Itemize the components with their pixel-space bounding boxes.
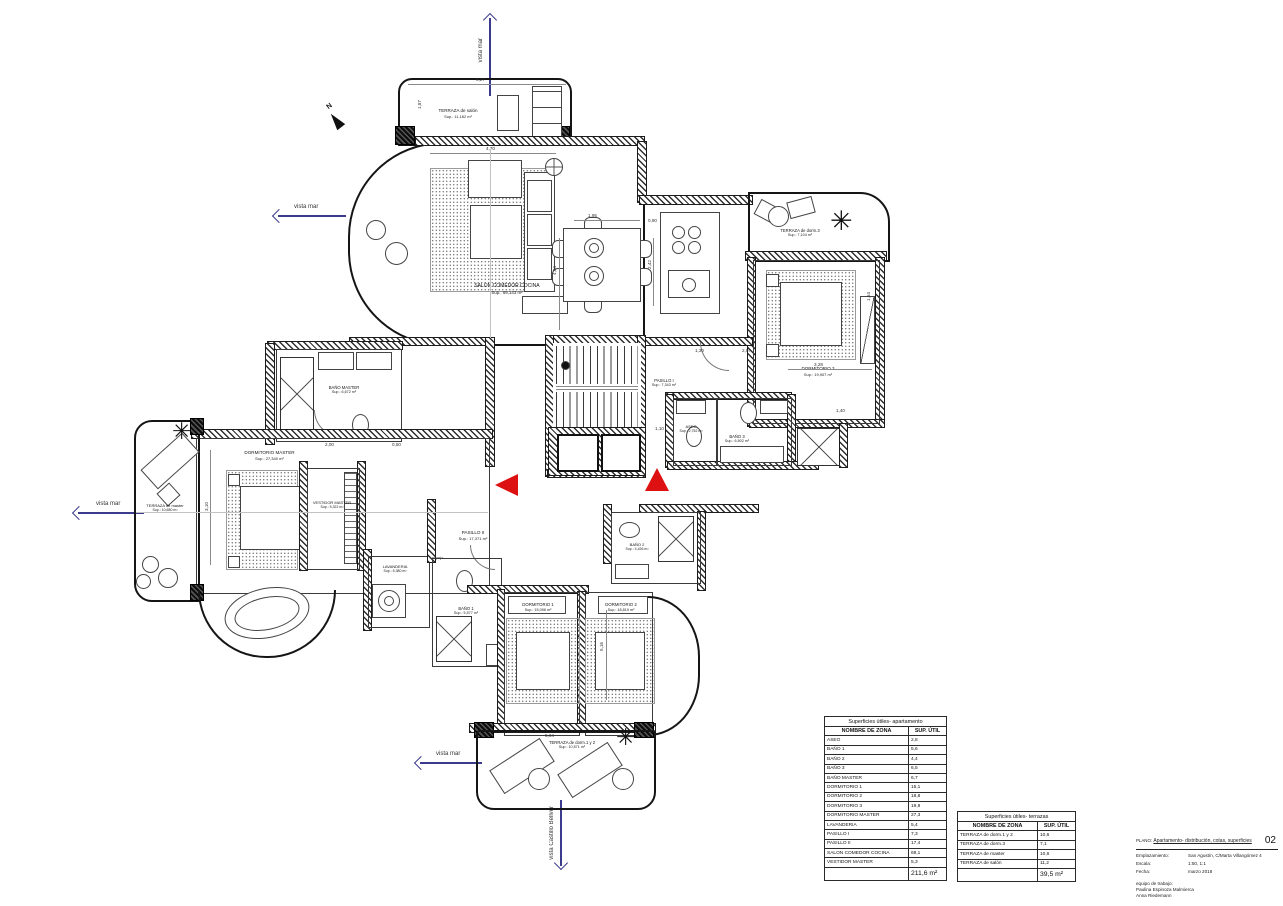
terrace-sofa	[532, 86, 562, 140]
table-row: SALON COMEDOR COCINA69,1	[825, 849, 947, 858]
north-arrow-icon: N	[331, 112, 341, 129]
dimension-label: 4,70	[486, 146, 495, 151]
wall-segment	[546, 336, 644, 343]
stair-start-dot	[561, 361, 570, 370]
plate-center	[589, 243, 599, 253]
room-label-bano2: BAÑO 2Sup.: 4,426 m²	[612, 542, 662, 552]
table-row: DORMITORIO 218,8	[825, 792, 947, 801]
table-row: BAÑO 36,5	[825, 764, 947, 773]
room-label-salon: SALON COMEDOR COCINASup.: 69,143 m²	[452, 283, 562, 295]
dimension-label: 0,50	[392, 442, 401, 447]
shower	[658, 516, 694, 562]
col-header-name: NOMBRE DE ZONA	[958, 822, 1038, 831]
dorm2-bed	[595, 632, 645, 690]
table-row: BAÑO 24,4	[825, 755, 947, 764]
title-block: PLANO: Apartamento- distribución, cotas,…	[1136, 838, 1278, 898]
toilet	[740, 402, 757, 424]
plant-icon: ✳	[172, 420, 191, 443]
sideboard	[522, 296, 568, 314]
closet	[344, 472, 357, 564]
wall-segment	[604, 505, 611, 563]
table-row: ASEO2,8	[825, 736, 947, 745]
sink	[760, 400, 788, 414]
wall-segment	[416, 137, 644, 145]
room-label-dormitorio2: DORMITORIO 2Sup.: 18,819 m²	[586, 602, 656, 612]
sink	[615, 564, 649, 579]
arrow-line	[420, 762, 482, 764]
team-member: Paulina Espinoza Malmierca	[1136, 887, 1278, 892]
wall-segment	[192, 430, 492, 438]
wardrobe	[860, 296, 875, 364]
dorm1-bed	[516, 632, 570, 690]
team-label: equipo de trabajo:	[1136, 881, 1278, 886]
sink	[318, 352, 354, 370]
dimension-line	[788, 369, 872, 370]
table-row: DORMITORIO 115,1	[825, 783, 947, 792]
table-title-row: Superficies útiles- terrazas	[958, 812, 1076, 822]
wall-segment	[644, 338, 752, 345]
terrace-table	[158, 568, 178, 588]
master-bed	[240, 486, 304, 550]
coffee-table	[470, 205, 522, 259]
room-label-vestidor: VESTIDOR MASTERSup.: 5,322 m²	[304, 500, 360, 510]
table-header-row: NOMBRE DE ZONA SUP. ÚTIL	[825, 727, 947, 736]
north-letter: N	[325, 102, 333, 111]
dimension-label: 2,00	[325, 442, 334, 447]
arrow-head-icon	[414, 756, 428, 770]
dimension-label: 3,10	[204, 502, 209, 511]
dimension-label: 2,07	[742, 348, 751, 353]
sofa-cushion	[527, 214, 552, 246]
arrow-head-icon	[272, 209, 286, 223]
wall-segment	[300, 462, 307, 570]
sheet-number: 02	[1265, 835, 1276, 846]
burner	[688, 241, 701, 254]
burner	[688, 226, 701, 239]
axis-line	[136, 512, 488, 513]
table-row: BAÑO MASTER6,7	[825, 773, 947, 782]
col-header-sup: SUP. ÚTIL	[1038, 822, 1076, 831]
sofa-cushion	[527, 248, 552, 280]
dimension-line	[408, 84, 566, 85]
wall-segment	[746, 252, 886, 260]
table-title-row: Superficies útiles- apartamento	[825, 717, 947, 727]
room-label-pasillo1: PASILLO ISup.: 7,343 m²	[634, 378, 694, 388]
wall-pier	[190, 418, 204, 435]
sink	[356, 352, 392, 370]
table-row: BAÑO 15,6	[825, 745, 947, 754]
dimension-line	[653, 238, 654, 306]
col-header-name: NOMBRE DE ZONA	[825, 727, 909, 736]
table-total-row: 39,5 m²	[958, 868, 1076, 881]
chair	[640, 240, 652, 258]
door-swing	[700, 342, 729, 371]
entry-marker-up-icon	[645, 468, 669, 491]
elevator-cab	[601, 434, 641, 472]
field-row: Escala: 1:50, 1:1	[1136, 861, 1278, 866]
dimension-line	[210, 450, 211, 565]
wall-segment	[840, 424, 847, 467]
view-label: vista Castillo Bellver	[549, 806, 555, 860]
room-label-lavanderia: LAVANDERIASup.: 5,380 m²	[364, 564, 426, 574]
dimension-label: 1,10	[655, 426, 664, 431]
view-label: vista mar	[294, 204, 318, 210]
wall-segment	[268, 342, 402, 349]
chair	[584, 301, 602, 313]
arrow-line	[278, 215, 346, 217]
field-label: Emplazamiento:	[1136, 853, 1188, 858]
field-row: Fecha: marzo 2018	[1136, 869, 1278, 874]
nightstand	[766, 344, 779, 357]
dimension-label: 1,64	[866, 292, 871, 301]
stair-treads	[556, 392, 638, 427]
table-superficies-apartamento: Superficies útiles- apartamento NOMBRE D…	[824, 716, 947, 881]
dimension-label: 1,30	[695, 348, 704, 353]
dimension-label: 3,28	[814, 362, 823, 367]
north-needle	[327, 111, 345, 131]
sink-basin	[682, 278, 696, 292]
table-row: TERRAZA de dorm.1 y 210,6	[958, 831, 1076, 840]
nightstand	[228, 474, 240, 486]
field-value: 1:50, 1:1	[1188, 861, 1206, 866]
table-title: Superficies útiles- terrazas	[958, 812, 1076, 822]
field-label: Escala:	[1136, 861, 1188, 866]
wall-segment	[640, 505, 758, 512]
dorm2-bow-window	[648, 596, 700, 736]
armchair	[385, 242, 408, 265]
room-label-aseo: ASEOSup.: 2,752 m²	[668, 424, 714, 434]
toilet	[619, 522, 640, 538]
table-row: VESTIDOR MASTER5,3	[825, 858, 947, 867]
shower	[797, 428, 841, 466]
plano-value: Apartamento- distribución, cotas, superf…	[1153, 838, 1251, 844]
room-label-terraza-dorm3: TERRAZA de dorm.3Sup.: 7,104 m²	[758, 228, 842, 238]
wall-segment	[638, 142, 646, 202]
dimension-line	[574, 220, 640, 221]
arrow-head-icon	[72, 506, 86, 520]
burner	[672, 241, 685, 254]
floorplan-sheet: vista mar vista mar vista mar vista mar …	[0, 0, 1283, 906]
terrace-table	[528, 768, 550, 790]
room-label-pasillo2: PASILLO IISup.: 17,371 m²	[436, 530, 510, 541]
chair	[584, 217, 602, 229]
room-label-terraza-salon: TERRAZA de salónSup.: 11,182 m²	[418, 108, 498, 119]
plate-center	[589, 271, 599, 281]
shower	[436, 616, 472, 662]
plano-row: PLANO: Apartamento- distribución, cotas,…	[1136, 838, 1278, 850]
table-header-row: NOMBRE DE ZONA SUP. ÚTIL	[958, 822, 1076, 831]
table-row: PASILLO II17,4	[825, 839, 947, 848]
ceiling-symbol-icon	[545, 158, 563, 176]
axis-line	[490, 150, 491, 338]
elevator-cab	[557, 434, 599, 472]
chair	[552, 240, 564, 258]
sofa-back	[468, 160, 522, 198]
nightstand	[766, 274, 779, 287]
dimension-label: 4,04	[552, 266, 557, 275]
armchair	[366, 220, 386, 240]
table-total: 211,6 m²	[909, 867, 947, 880]
bathtub	[720, 446, 784, 463]
dimension-label: 2,42	[647, 260, 652, 269]
dimension-label: 1,95	[588, 213, 597, 218]
stair-rail	[556, 389, 638, 390]
team-member: Anna Riedemann	[1136, 893, 1278, 898]
dimension-label: 5,16	[599, 642, 604, 651]
dimension-line	[430, 153, 556, 154]
dimension-label: 6,27	[476, 77, 485, 82]
arrow-head-icon	[554, 856, 568, 870]
table-title: Superficies útiles- apartamento	[825, 717, 947, 727]
table-row: TERRAZA de salón11,2	[958, 859, 1076, 868]
dorm3-bed	[780, 282, 842, 346]
arrow-head-icon	[483, 13, 497, 27]
view-label: vista mar	[478, 38, 484, 62]
room-label-dorm-master: DORMITORIO MASTERSup.: 27,340 m²	[222, 450, 317, 461]
table-row: DORMITORIO 319,9	[825, 802, 947, 811]
field-value: San Agustín, C/Marta Villangómez 4	[1188, 853, 1262, 858]
field-row: Emplazamiento: San Agustín, C/Marta Vill…	[1136, 853, 1278, 858]
sink	[676, 400, 706, 414]
view-label: vista mar	[436, 751, 460, 757]
dimension-label: 0,90	[648, 218, 657, 223]
wall-pier	[395, 126, 415, 145]
room-label-bano3: BAÑO 3Sup.: 6,502 m²	[708, 434, 766, 444]
table-row: DORMITORIO MASTER27,3	[825, 811, 947, 820]
table-row: TERRAZA de dorm.37,1	[958, 840, 1076, 849]
col-header-sup: SUP. ÚTIL	[909, 727, 947, 736]
wall-segment	[428, 500, 435, 562]
dimension-label: 1,87	[417, 100, 422, 109]
terrace-chair	[142, 556, 159, 573]
table-row: PASILLO I7,3	[825, 830, 947, 839]
table-superficies-terrazas: Superficies útiles- terrazas NOMBRE DE Z…	[957, 811, 1076, 882]
room-label-bano-master: BAÑO MASTERSup.: 6,672 m²	[312, 385, 376, 395]
dimension-line	[559, 238, 560, 330]
shower	[280, 357, 314, 431]
stair-rail	[556, 386, 638, 387]
room-label-dormitorio3: DORMITORIO 3Sup.: 19,907 m²	[778, 366, 858, 377]
table-total-row: 211,6 m²	[825, 867, 947, 880]
burner	[672, 226, 685, 239]
room-label-dormitorio1: DORMITORIO 1Sup.: 15,096 m²	[502, 602, 574, 612]
terrace-table	[497, 95, 519, 131]
wall-segment	[640, 196, 752, 204]
table-row: TERRAZA de master10,6	[958, 850, 1076, 859]
plano-label: PLANO:	[1136, 838, 1152, 843]
sofa-cushion	[527, 180, 552, 212]
dimension-line	[606, 610, 607, 700]
table-total: 39,5 m²	[1038, 868, 1076, 881]
terrace-table	[612, 768, 634, 790]
terrace-round-table	[768, 206, 789, 227]
washer-center	[384, 596, 394, 606]
table-row: LAVANDERIA5,4	[825, 820, 947, 829]
nightstand	[228, 556, 240, 568]
entry-marker-left-icon	[495, 474, 518, 496]
terrace-chair	[136, 574, 151, 589]
stairwell	[553, 343, 641, 429]
room-label-bano1: BAÑO 1Sup.: 5,577 m²	[436, 606, 496, 616]
room-label-terraza-dorm12: TERRAZA de dorm.1 y 2Sup.: 10,571 m²	[522, 740, 622, 750]
dimension-label: 1,40	[836, 408, 845, 413]
dimension-label: 5,04	[545, 733, 554, 738]
field-label: Fecha:	[1136, 869, 1188, 874]
field-value: marzo 2018	[1188, 869, 1212, 874]
dining-table	[563, 228, 641, 302]
chair	[640, 268, 652, 286]
wall-segment	[266, 344, 274, 444]
view-label: vista mar	[96, 501, 120, 507]
